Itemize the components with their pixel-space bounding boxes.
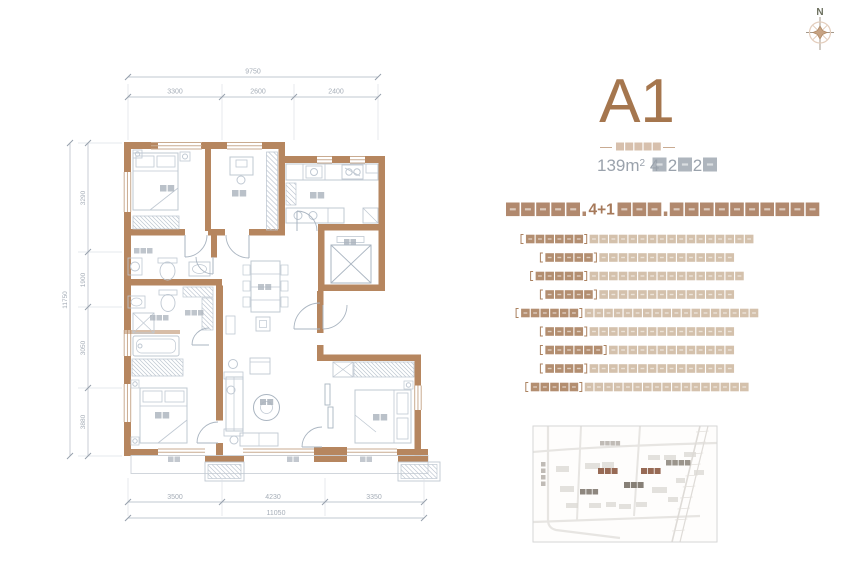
svg-text:2: 2 [668,156,677,175]
svg-text:N: N [816,7,823,18]
svg-text:3500: 3500 [167,494,183,501]
svg-text:2400: 2400 [328,89,344,96]
svg-text:9750: 9750 [245,69,261,76]
svg-text:1900: 1900 [80,272,87,287]
svg-text:2600: 2600 [250,89,266,96]
svg-text:3880: 3880 [80,414,87,429]
svg-text:139m2 4: 139m2 4 [597,156,659,175]
svg-text:4230: 4230 [265,494,281,501]
svg-text:4+1: 4+1 [589,202,616,219]
svg-text:11750: 11750 [62,291,69,309]
svg-text:11050: 11050 [267,510,286,517]
svg-text:A1: A1 [599,67,675,136]
svg-text:2: 2 [693,156,702,175]
svg-text:3300: 3300 [167,89,183,96]
svg-text:3050: 3050 [80,340,87,355]
svg-text:3350: 3350 [366,494,382,501]
svg-text:3290: 3290 [80,190,87,205]
